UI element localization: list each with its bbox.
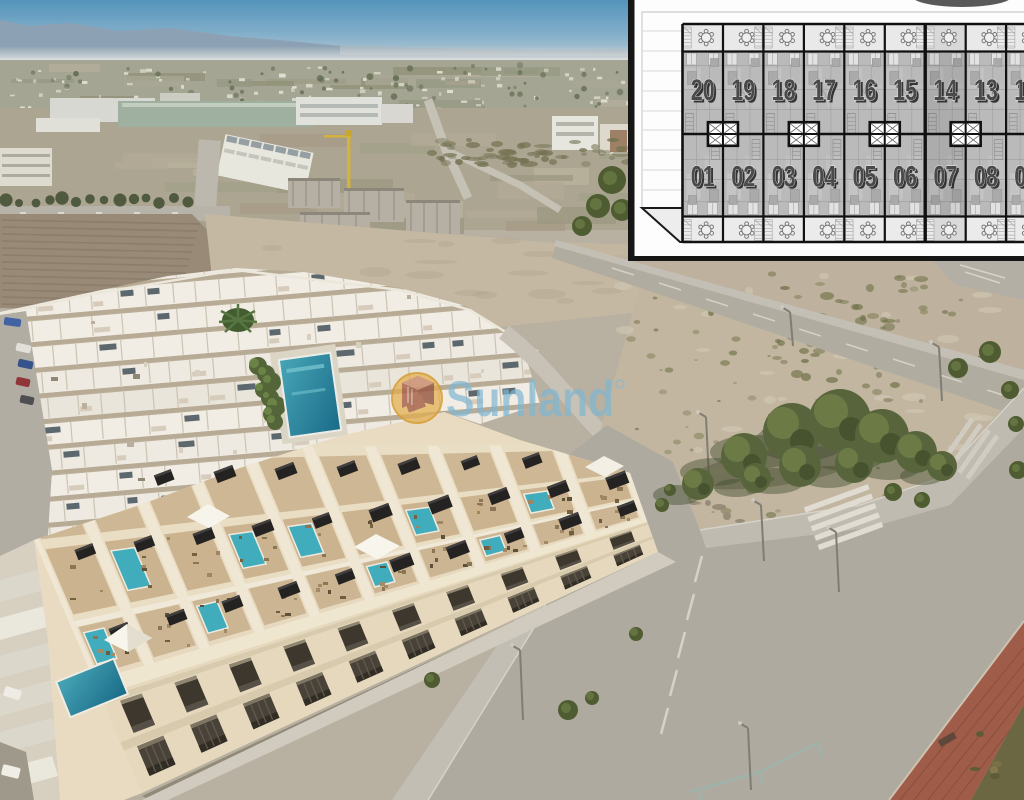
svg-text:14: 14 (933, 74, 957, 107)
svg-text:06: 06 (893, 160, 917, 193)
svg-text:12: 12 (1014, 74, 1024, 107)
svg-text:17: 17 (812, 74, 836, 107)
svg-text:02: 02 (731, 160, 755, 193)
svg-text:16: 16 (853, 74, 877, 107)
svg-text:20: 20 (691, 74, 715, 107)
svg-text:04: 04 (812, 160, 836, 193)
svg-text:05: 05 (853, 160, 877, 193)
svg-text:19: 19 (731, 74, 755, 107)
svg-text:08: 08 (974, 160, 998, 193)
svg-text:03: 03 (772, 160, 796, 193)
svg-text:01: 01 (691, 160, 715, 193)
svg-text:18: 18 (772, 74, 796, 107)
svg-text:15: 15 (893, 74, 917, 107)
svg-text:13: 13 (974, 74, 998, 107)
svg-text:09: 09 (1014, 160, 1024, 193)
svg-text:07: 07 (933, 160, 957, 193)
